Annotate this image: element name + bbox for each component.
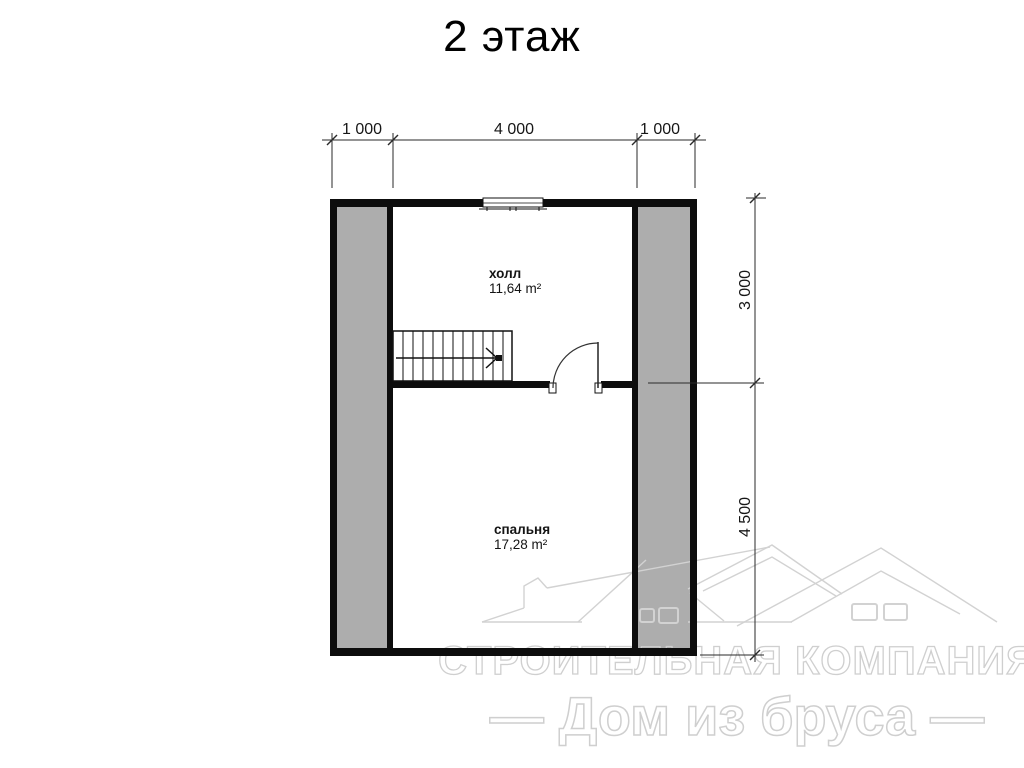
room-label-hall: холл 11,64 m² bbox=[489, 266, 541, 297]
wall-partition-right bbox=[601, 381, 638, 388]
stairs-icon bbox=[393, 331, 512, 381]
wall-inner-left bbox=[387, 207, 393, 648]
floor-plan-page: 2 этаж СТРОИТЕЛЬНА bbox=[0, 0, 1024, 768]
wall-left bbox=[330, 199, 337, 656]
page-title: 2 этаж bbox=[362, 12, 662, 62]
window-icon bbox=[479, 198, 547, 211]
dim-top-center: 4 000 bbox=[464, 121, 564, 139]
wall-inner-right bbox=[632, 207, 638, 648]
dim-top-left: 1 000 bbox=[312, 121, 412, 139]
door-icon bbox=[549, 342, 602, 393]
dim-top-right: 1 000 bbox=[610, 121, 710, 139]
room-area: 11,64 m² bbox=[489, 281, 541, 297]
dim-right-upper: 3 000 bbox=[737, 240, 755, 340]
room-area: 17,28 m² bbox=[494, 537, 550, 553]
dim-right-lower: 4 500 bbox=[737, 467, 755, 567]
wall-bottom bbox=[330, 648, 697, 656]
room-name: холл bbox=[489, 266, 541, 281]
room-name: спальня bbox=[494, 522, 550, 537]
wall-right bbox=[690, 199, 697, 656]
wall-partition-left bbox=[387, 381, 550, 388]
room-label-bedroom: спальня 17,28 m² bbox=[494, 522, 550, 553]
plan-layer bbox=[0, 0, 1024, 768]
